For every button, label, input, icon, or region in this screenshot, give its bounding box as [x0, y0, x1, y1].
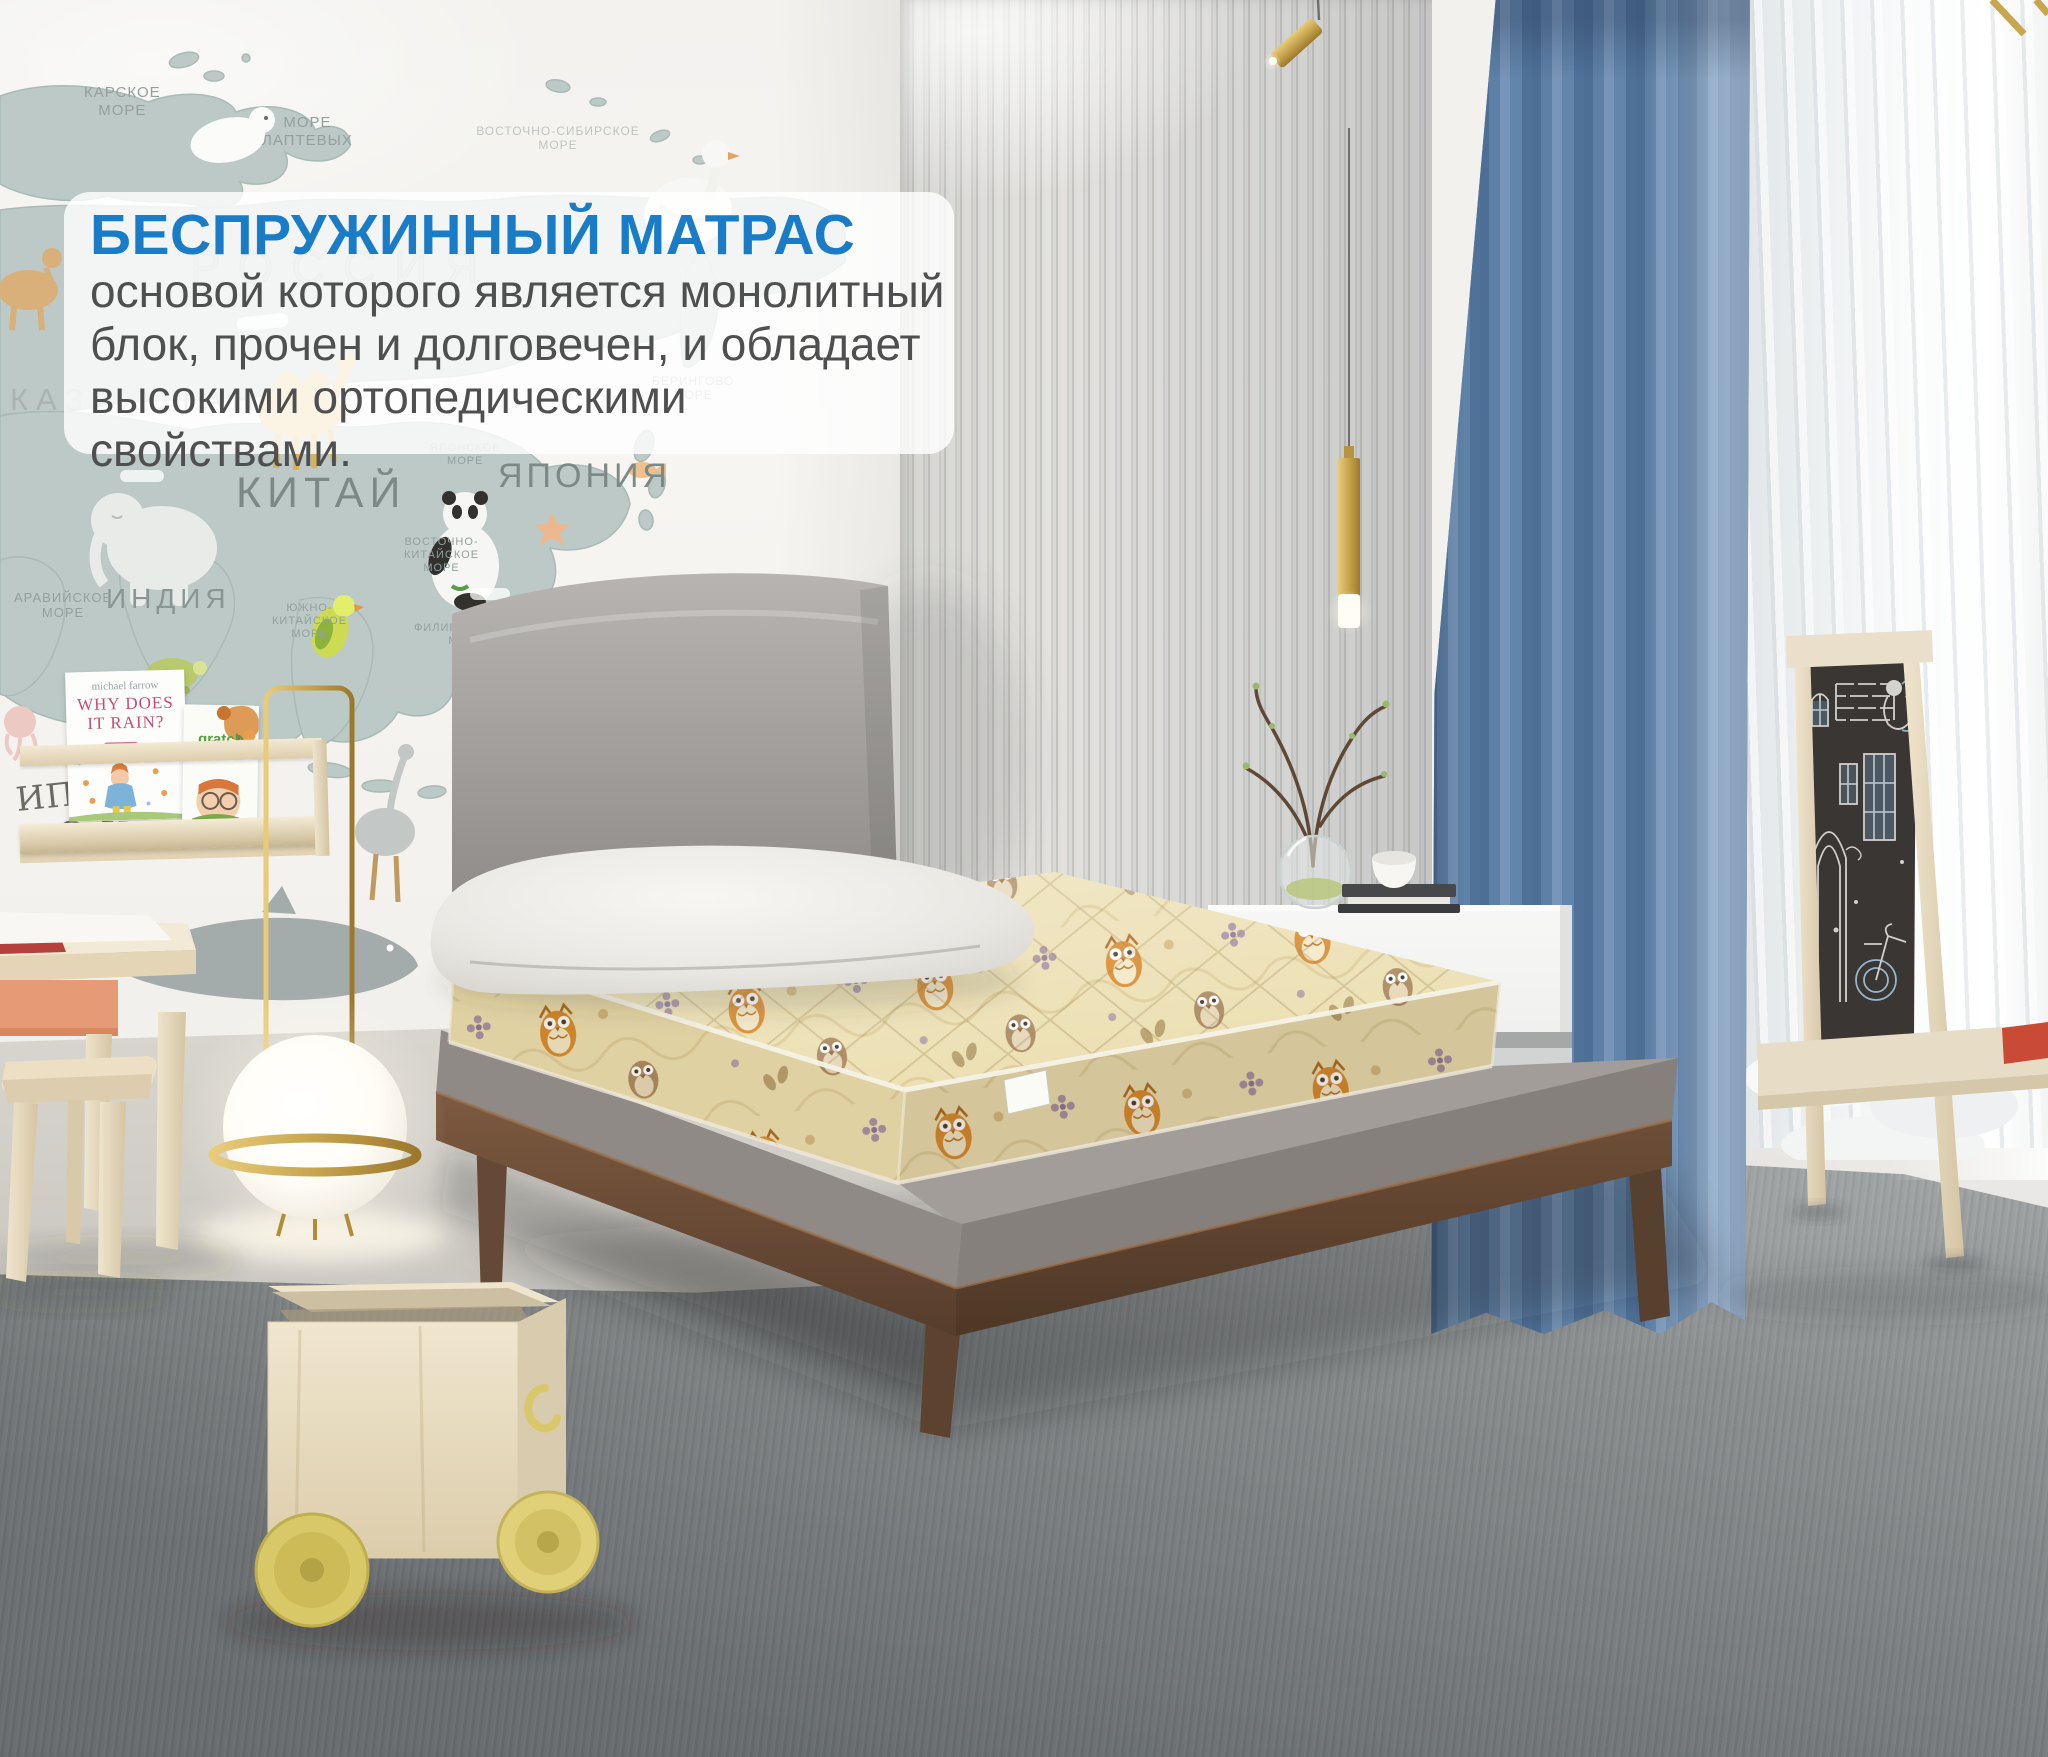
stacked-books [1338, 884, 1460, 913]
caption-overlay: БЕСПРУЖИННЫЙ МАТРАС основой которого явл… [64, 192, 954, 454]
cart-wheel [256, 1514, 368, 1626]
desk-drawer [0, 980, 118, 1034]
angled-pendant-lamp [1263, 0, 1324, 71]
product-photo-kids-bedroom: КАРСКОЕ МОРЕ МОРЕ ЛАПТЕВЫХ ВОСТОЧНО-СИБИ… [0, 0, 2048, 1757]
red-chalk-box [2002, 1022, 2048, 1064]
white-cup [1372, 851, 1416, 888]
paper-sheet [0, 912, 172, 944]
chalkboard-easel [1715, 630, 2048, 1318]
caption-line-2: блок, прочен и долговечен, и обладает [90, 318, 954, 371]
caption-title: БЕСПРУЖИННЫЙ МАТРАС [90, 205, 954, 265]
vase-with-branches [1243, 683, 1390, 909]
cart-wheel [498, 1492, 598, 1592]
slim-pendant-lamp [1327, 128, 1371, 634]
toy-cart [225, 1282, 635, 1650]
corner-pendant-rods [1992, 0, 2048, 34]
sphere-floor-lamp [183, 688, 447, 1262]
caption-line-3: высокими ортопедическими свойствами. [90, 371, 954, 477]
caption-line-1: основой которого является монолитный [90, 265, 954, 318]
